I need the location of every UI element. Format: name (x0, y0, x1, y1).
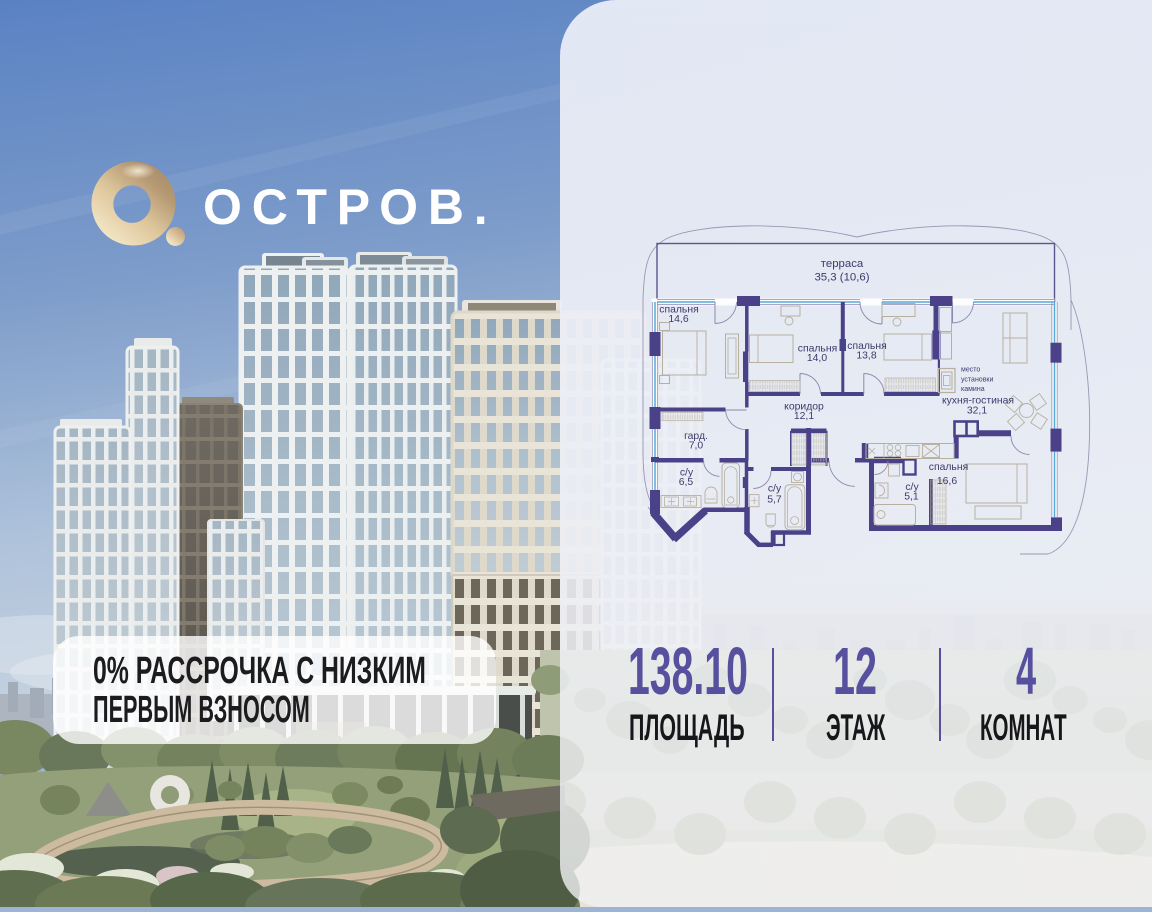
svg-text:12,1: 12,1 (794, 411, 814, 422)
svg-text:с/у: с/у (768, 484, 782, 495)
svg-text:5,7: 5,7 (767, 495, 782, 506)
svg-text:терраса: терраса (821, 258, 864, 270)
svg-text:35,3 (10,6): 35,3 (10,6) (814, 272, 869, 284)
svg-text:16,6: 16,6 (937, 476, 957, 487)
svg-text:32,1: 32,1 (967, 406, 987, 417)
svg-text:6,5: 6,5 (679, 477, 694, 488)
svg-text:14,6: 14,6 (668, 314, 688, 325)
svg-text:7,0: 7,0 (689, 441, 704, 452)
svg-text:13,8: 13,8 (856, 351, 876, 362)
svg-text:14,0: 14,0 (807, 353, 827, 364)
svg-text:5,1: 5,1 (904, 492, 919, 503)
svg-text:спальня: спальня (929, 462, 968, 473)
svg-text:камина: камина (961, 386, 985, 393)
svg-text:установки: установки (961, 376, 993, 383)
svg-text:место: место (961, 367, 980, 374)
